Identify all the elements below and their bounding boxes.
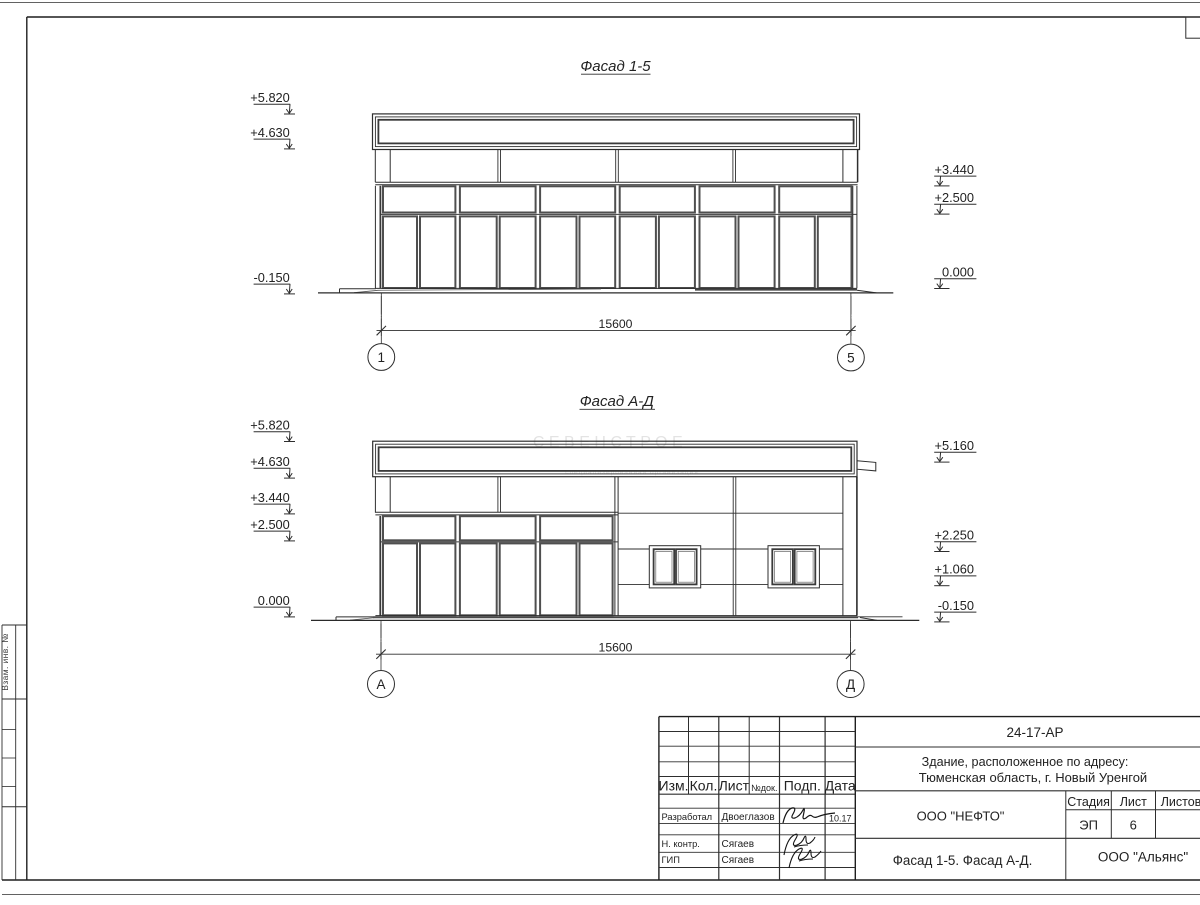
svg-text:Лист: Лист [1120, 795, 1147, 809]
svg-text:Взам. инв. №: Взам. инв. № [0, 633, 10, 690]
svg-text:ООО "НЕФТО": ООО "НЕФТО" [917, 808, 1005, 823]
svg-text:Д: Д [846, 677, 855, 692]
svg-text:15600: 15600 [599, 640, 633, 654]
svg-text:24-17-АР: 24-17-АР [1006, 725, 1063, 740]
svg-text:Подп.: Подп. [784, 778, 821, 794]
svg-text:Листов: Листов [1161, 795, 1200, 809]
svg-text:0.000: 0.000 [258, 593, 290, 608]
svg-text:+2.500: +2.500 [935, 190, 975, 205]
svg-text:+3.440: +3.440 [935, 162, 975, 177]
svg-text:15600: 15600 [599, 317, 633, 331]
svg-text:Дата: Дата [825, 778, 856, 794]
svg-text:ЭП: ЭП [1079, 817, 1098, 832]
svg-text:0.000: 0.000 [942, 265, 974, 280]
svg-text:+4.630: +4.630 [250, 454, 290, 469]
svg-text:СЕВЕНСТРОЕ: СЕВЕНСТРОЕ [533, 434, 687, 451]
svg-text:1: 1 [378, 350, 386, 365]
svg-text:Фасад А-Д: Фасад А-Д [580, 393, 655, 410]
svg-text:+5.820: +5.820 [250, 90, 290, 105]
svg-text:5: 5 [847, 350, 855, 365]
svg-text:Сягаев: Сягаев [722, 855, 755, 866]
svg-text:-0.150: -0.150 [254, 270, 290, 285]
svg-text:ГИП: ГИП [662, 855, 680, 865]
svg-text:Здание, расположенное по адрес: Здание, расположенное по адресу: [922, 755, 1129, 769]
svg-text:Тюменская область, г. Новый Ур: Тюменская область, г. Новый Уренгой [919, 770, 1147, 785]
svg-text:Разработал: Разработал [662, 812, 713, 822]
svg-text:Фасад 1-5. Фасад А-Д.: Фасад 1-5. Фасад А-Д. [893, 853, 1033, 868]
svg-text:Кол.: Кол. [690, 778, 718, 794]
svg-text:Изм.: Изм. [659, 778, 689, 794]
svg-text:+3.440: +3.440 [250, 490, 290, 505]
svg-text:№док.: №док. [751, 783, 777, 793]
svg-text:+5.160: +5.160 [935, 438, 975, 453]
svg-text:6: 6 [1130, 817, 1137, 832]
svg-text:Лист: Лист [719, 778, 750, 794]
svg-text:Фасад 1-5: Фасад 1-5 [580, 58, 651, 75]
svg-text:А: А [376, 677, 385, 692]
svg-text:Двоеглазов: Двоеглазов [722, 812, 775, 823]
svg-text:+4.630: +4.630 [250, 125, 290, 140]
svg-text:-0.150: -0.150 [938, 598, 974, 613]
svg-text:Н. контр.: Н. контр. [662, 839, 700, 849]
svg-text:10.17: 10.17 [829, 813, 852, 823]
svg-text:+2.500: +2.500 [250, 517, 290, 532]
svg-text:+2.250: +2.250 [935, 528, 975, 543]
svg-text:+5.820: +5.820 [250, 418, 290, 433]
svg-text:ООО "Альянс": ООО "Альянс" [1098, 849, 1188, 864]
svg-text:Сягаев: Сягаев [722, 839, 755, 850]
svg-text:+1.060: +1.060 [935, 562, 975, 577]
svg-text:Стадия: Стадия [1067, 795, 1110, 809]
